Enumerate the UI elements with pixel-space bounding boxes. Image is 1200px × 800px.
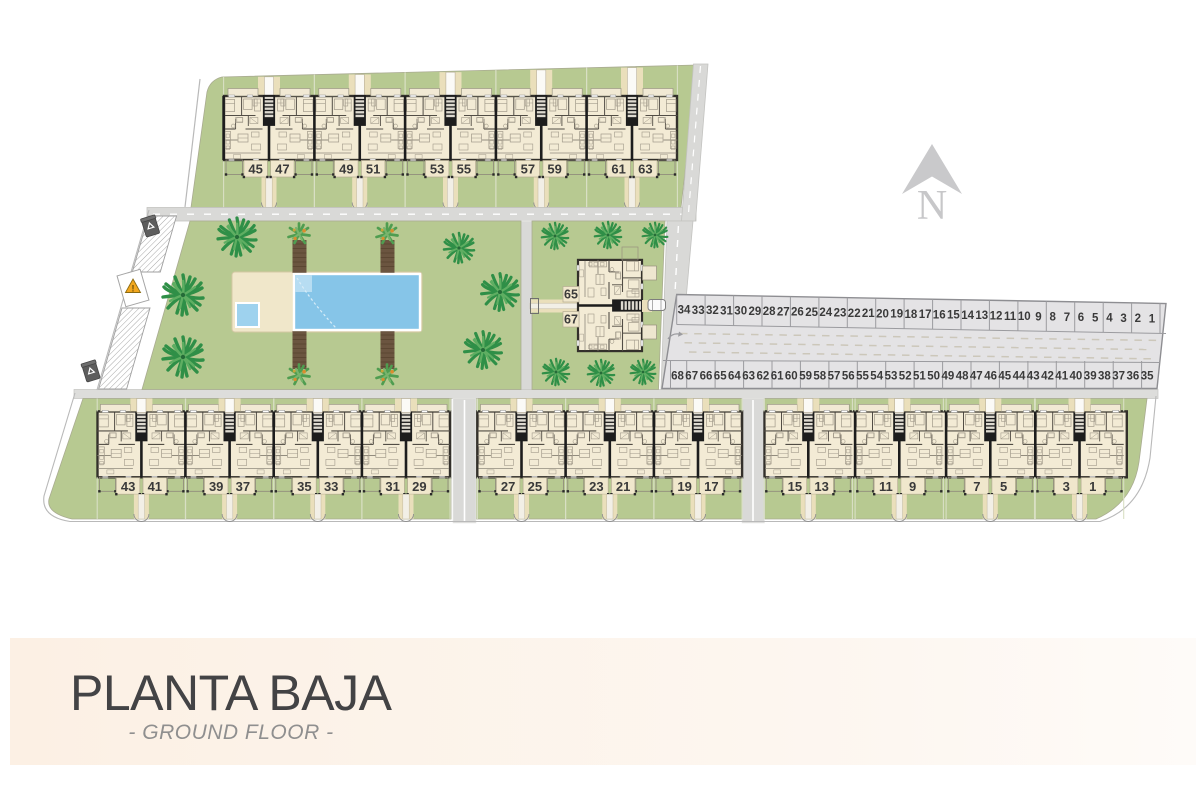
svg-text:35: 35 xyxy=(297,479,311,494)
svg-text:31: 31 xyxy=(720,305,733,317)
svg-text:17: 17 xyxy=(704,479,718,494)
svg-text:56: 56 xyxy=(842,371,855,383)
svg-text:13: 13 xyxy=(814,479,828,494)
svg-text:27: 27 xyxy=(777,306,790,318)
svg-text:1: 1 xyxy=(1089,479,1096,494)
svg-text:2: 2 xyxy=(1135,313,1141,325)
svg-text:54: 54 xyxy=(870,371,883,383)
svg-text:21: 21 xyxy=(862,308,875,320)
svg-text:11: 11 xyxy=(879,479,893,494)
svg-text:PLANTA BAJA: PLANTA BAJA xyxy=(70,665,393,721)
svg-text:59: 59 xyxy=(547,162,561,177)
svg-text:59: 59 xyxy=(799,371,812,383)
svg-text:33: 33 xyxy=(692,305,705,317)
svg-text:23: 23 xyxy=(834,308,847,320)
svg-text:25: 25 xyxy=(528,479,542,494)
svg-text:39: 39 xyxy=(209,479,223,494)
svg-text:26: 26 xyxy=(791,307,804,319)
svg-text:43: 43 xyxy=(121,479,135,494)
svg-text:51: 51 xyxy=(913,371,926,383)
svg-text:38: 38 xyxy=(1098,371,1111,383)
svg-text:63: 63 xyxy=(742,371,755,383)
svg-text:23: 23 xyxy=(589,479,603,494)
svg-text:63: 63 xyxy=(638,162,652,177)
svg-text:7: 7 xyxy=(1064,312,1070,324)
svg-text:35: 35 xyxy=(1141,371,1154,383)
svg-text:60: 60 xyxy=(785,371,798,383)
svg-text:39: 39 xyxy=(1084,371,1097,383)
svg-text:9: 9 xyxy=(909,479,916,494)
svg-text:5: 5 xyxy=(1000,479,1007,494)
svg-text:58: 58 xyxy=(813,371,826,383)
svg-text:68: 68 xyxy=(671,371,684,383)
svg-text:49: 49 xyxy=(942,371,955,383)
svg-text:- GROUND FLOOR -: - GROUND FLOOR - xyxy=(128,721,333,744)
svg-text:44: 44 xyxy=(1013,371,1026,383)
svg-text:17: 17 xyxy=(919,309,932,321)
svg-text:33: 33 xyxy=(324,479,338,494)
svg-text:47: 47 xyxy=(970,371,983,383)
svg-text:55: 55 xyxy=(457,162,471,177)
svg-text:10: 10 xyxy=(1018,311,1031,323)
svg-text:67: 67 xyxy=(564,313,578,327)
svg-text:3: 3 xyxy=(1120,313,1126,325)
svg-text:51: 51 xyxy=(366,162,380,177)
svg-text:57: 57 xyxy=(521,162,535,177)
svg-text:19: 19 xyxy=(890,309,903,321)
svg-text:24: 24 xyxy=(819,307,832,319)
svg-text:47: 47 xyxy=(275,162,289,177)
svg-text:28: 28 xyxy=(763,306,776,318)
svg-text:62: 62 xyxy=(757,371,770,383)
svg-text:31: 31 xyxy=(385,479,399,494)
svg-text:30: 30 xyxy=(734,306,747,318)
svg-text:5: 5 xyxy=(1092,312,1099,324)
svg-text:22: 22 xyxy=(848,308,861,320)
svg-text:29: 29 xyxy=(749,306,762,318)
svg-text:3: 3 xyxy=(1063,479,1070,494)
svg-text:40: 40 xyxy=(1070,371,1083,383)
svg-text:42: 42 xyxy=(1041,371,1054,383)
svg-text:32: 32 xyxy=(706,305,719,317)
svg-text:15: 15 xyxy=(947,310,960,322)
svg-text:8: 8 xyxy=(1049,312,1056,324)
svg-text:55: 55 xyxy=(856,371,869,383)
svg-text:11: 11 xyxy=(1004,311,1017,323)
svg-text:65: 65 xyxy=(714,371,727,383)
svg-text:1: 1 xyxy=(1149,314,1156,326)
svg-text:21: 21 xyxy=(616,479,630,494)
svg-text:9: 9 xyxy=(1035,311,1041,323)
svg-text:46: 46 xyxy=(984,371,997,383)
svg-text:37: 37 xyxy=(1112,371,1125,383)
svg-text:53: 53 xyxy=(430,162,444,177)
svg-text:64: 64 xyxy=(728,371,741,383)
svg-text:45: 45 xyxy=(998,371,1011,383)
svg-text:41: 41 xyxy=(148,479,162,494)
svg-text:13: 13 xyxy=(975,310,988,322)
svg-text:45: 45 xyxy=(248,162,262,177)
svg-text:61: 61 xyxy=(611,162,625,177)
svg-text:25: 25 xyxy=(805,307,818,319)
svg-text:N: N xyxy=(917,183,947,229)
svg-text:20: 20 xyxy=(876,308,889,320)
svg-text:36: 36 xyxy=(1127,371,1140,383)
svg-text:7: 7 xyxy=(973,479,980,494)
svg-text:53: 53 xyxy=(885,371,898,383)
svg-text:48: 48 xyxy=(956,371,969,383)
svg-text:19: 19 xyxy=(677,479,691,494)
svg-text:65: 65 xyxy=(564,288,578,302)
svg-text:41: 41 xyxy=(1055,371,1068,383)
svg-text:57: 57 xyxy=(828,371,841,383)
svg-text:!: ! xyxy=(132,283,135,293)
svg-text:16: 16 xyxy=(933,309,946,321)
svg-text:18: 18 xyxy=(905,309,918,321)
svg-text:4: 4 xyxy=(1106,313,1113,325)
svg-text:12: 12 xyxy=(990,311,1003,323)
svg-text:67: 67 xyxy=(685,371,698,383)
svg-text:52: 52 xyxy=(899,371,912,383)
svg-text:27: 27 xyxy=(501,479,515,494)
svg-text:34: 34 xyxy=(678,305,691,317)
svg-text:49: 49 xyxy=(339,162,353,177)
svg-text:37: 37 xyxy=(236,479,250,494)
svg-text:66: 66 xyxy=(700,371,713,383)
svg-text:6: 6 xyxy=(1078,312,1084,324)
svg-text:61: 61 xyxy=(771,371,784,383)
svg-text:43: 43 xyxy=(1027,371,1040,383)
svg-text:15: 15 xyxy=(788,479,802,494)
svg-text:29: 29 xyxy=(412,479,426,494)
svg-text:50: 50 xyxy=(927,371,940,383)
svg-text:14: 14 xyxy=(961,310,974,322)
